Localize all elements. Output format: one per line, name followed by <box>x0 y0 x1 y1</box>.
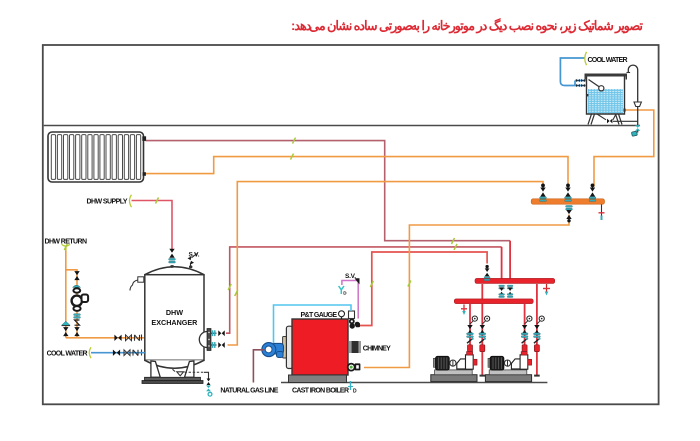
svg-text:S.V.: S.V. <box>345 273 356 280</box>
svg-text:NATURAL GAS LINE: NATURAL GAS LINE <box>220 388 278 395</box>
svg-text:تصویر شماتیک زیر، نحوه نصب دیگ: تصویر شماتیک زیر، نحوه نصب دیگ در موتورخ… <box>291 17 643 34</box>
svg-text:DHW: DHW <box>166 308 183 317</box>
svg-text:COOL WATER: COOL WATER <box>588 57 628 64</box>
svg-text:DHW SUPPLY: DHW SUPPLY <box>87 199 128 206</box>
svg-text:EXCHANGER: EXCHANGER <box>151 318 198 327</box>
svg-text:S.V.: S.V. <box>189 252 200 259</box>
svg-text:P&T GAUGE: P&T GAUGE <box>301 312 338 319</box>
svg-text:CAST IRON BOILER: CAST IRON BOILER <box>292 388 349 395</box>
svg-text:CHIMNEY: CHIMNEY <box>363 346 391 353</box>
svg-text:D: D <box>353 389 357 395</box>
svg-text:DHW RETURN: DHW RETURN <box>45 239 88 246</box>
svg-text:COOL WATER: COOL WATER <box>47 351 88 358</box>
